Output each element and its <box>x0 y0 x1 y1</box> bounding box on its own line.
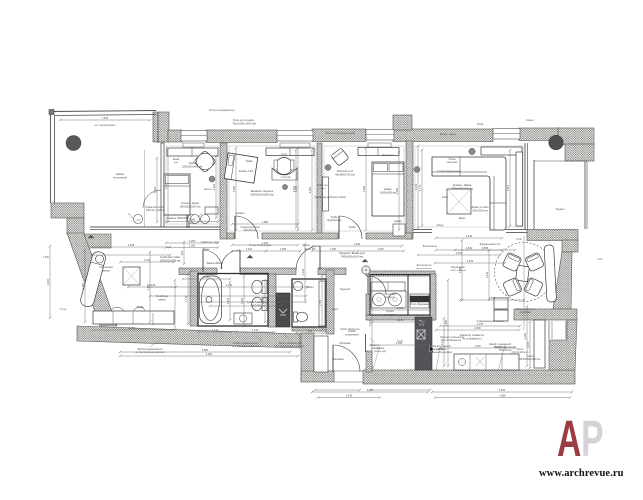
svg-text:2400 мм, 3х600 мм: 2400 мм, 3х600 мм <box>146 210 167 212</box>
svg-text:1,420: 1,420 <box>246 247 253 251</box>
svg-text:3,120: 3,120 <box>414 183 418 190</box>
svg-text:1,980: 1,980 <box>146 283 150 290</box>
svg-text:2,280: 2,280 <box>189 239 196 243</box>
svg-text:гарнитур: гарнитур <box>385 314 396 317</box>
svg-text:www.archrevue.ru: www.archrevue.ru <box>539 468 624 479</box>
svg-text:1,545: 1,545 <box>377 247 384 251</box>
svg-text:2,465: 2,465 <box>128 243 135 247</box>
svg-text:розеты под: розеты под <box>374 351 387 353</box>
svg-text:2,810: 2,810 <box>456 251 463 255</box>
svg-text:Выбор компонентов: Выбор компонентов <box>279 342 302 345</box>
svg-text:900х600х750 мм: 900х600х750 мм <box>335 174 354 177</box>
svg-text:Журнальный стол: Журнальный стол <box>480 243 501 246</box>
svg-text:Шкаф: Шкаф <box>173 158 179 161</box>
svg-text:1,720: 1,720 <box>144 258 151 262</box>
svg-text:2,760: 2,760 <box>129 326 136 330</box>
svg-text:Кровать: Кровать <box>235 212 245 215</box>
svg-text:2,880: 2,880 <box>444 319 448 326</box>
svg-text:Кровать 1400: Кровать 1400 <box>239 171 254 173</box>
svg-text:1,310: 1,310 <box>252 328 259 332</box>
svg-text:Прихожая: Прихожая <box>339 342 351 345</box>
svg-text:2,895: 2,895 <box>482 246 489 250</box>
svg-text:не отображается: не отображается <box>463 337 482 340</box>
svg-text:1,660: 1,660 <box>240 297 244 304</box>
svg-text:4,640: 4,640 <box>499 388 506 392</box>
svg-text:2,990: 2,990 <box>354 242 361 246</box>
svg-text:1,160: 1,160 <box>203 275 210 279</box>
svg-text:1,660: 1,660 <box>489 296 496 300</box>
svg-text:Тумба. Шкаф-купе: Тумба. Шкаф-купе <box>340 328 360 331</box>
svg-text:Кресло: Кресло <box>204 189 212 191</box>
svg-text:2,990: 2,990 <box>292 185 296 192</box>
svg-text:(не окончательно) определ.: (не окончательно) определ. <box>275 346 305 348</box>
svg-text:Задела: Задела <box>376 347 385 350</box>
svg-text:2,810: 2,810 <box>466 246 473 250</box>
svg-text:двери: двери <box>332 309 339 311</box>
svg-text:1,435: 1,435 <box>346 394 353 398</box>
svg-text:Двери 800: Двери 800 <box>304 249 316 251</box>
svg-text:Стена: Стена <box>60 308 67 311</box>
svg-text:2,930: 2,930 <box>395 187 399 194</box>
svg-text:Лоджия: Лоджия <box>556 208 566 211</box>
svg-text:Кровать 1600х2000: Кровать 1600х2000 <box>167 217 190 220</box>
svg-text:-0,02: -0,02 <box>136 220 142 222</box>
svg-text:2,120: 2,120 <box>397 306 404 310</box>
svg-text:Полка: Полка <box>449 158 456 161</box>
svg-text:Дверь: Дверь <box>202 248 210 251</box>
svg-text:Ванна: Ванна <box>102 269 110 272</box>
svg-text:Тумба: Тумба <box>348 226 356 229</box>
svg-text:Полка: Полка <box>477 124 484 126</box>
svg-text:Кровать. Шкаф: Кровать. Шкаф <box>453 183 472 187</box>
svg-text:750х550 мм: 750х550 мм <box>499 350 512 352</box>
svg-text:панель: панель <box>158 298 167 301</box>
svg-text:Ковер: Ковер <box>437 224 444 227</box>
svg-text:3,180: 3,180 <box>153 186 157 193</box>
svg-text:1,420: 1,420 <box>526 341 530 348</box>
svg-text:980: 980 <box>308 329 313 333</box>
svg-text:3,080: 3,080 <box>232 185 236 192</box>
svg-text:Стена. Перегородки: Стена. Перегородки <box>249 244 272 247</box>
svg-text:Шкаф, комод: Шкаф, комод <box>440 132 457 136</box>
svg-text:2,080: 2,080 <box>189 244 196 248</box>
svg-text:Кухонный: Кухонный <box>385 293 396 296</box>
svg-text:не отображается: не отображается <box>443 340 462 342</box>
svg-text:2,980: 2,980 <box>308 186 312 193</box>
svg-text:1,980: 1,980 <box>458 266 462 273</box>
svg-text:Обеденный стол: Обеденный стол <box>516 308 535 311</box>
svg-text:2700х1800х620 мм: 2700х1800х620 мм <box>451 188 473 191</box>
svg-text:2,080: 2,080 <box>523 332 527 339</box>
svg-text:2,830: 2,830 <box>474 326 481 330</box>
svg-text:Стол: Стол <box>516 238 522 241</box>
svg-text:1,080: 1,080 <box>280 247 287 251</box>
svg-text:Кухня: Кухня <box>387 309 395 313</box>
svg-text:1600х2000х620 мм: 1600х2000х620 мм <box>180 205 201 208</box>
svg-text:Шкаф: Шкаф <box>437 348 444 351</box>
svg-text:Тумба под рабочим столом: Тумба под рабочим столом <box>314 196 346 199</box>
svg-text:(не оказывать) покрытие: (не оказывать) покрытие <box>232 345 260 348</box>
svg-text:3,130: 3,130 <box>164 182 168 189</box>
svg-text:2,880: 2,880 <box>81 282 85 289</box>
svg-text:Тумба: Тумба <box>331 216 338 219</box>
svg-text:2,620: 2,620 <box>46 278 50 285</box>
svg-text:2,900: 2,900 <box>212 183 216 190</box>
svg-text:Подвесной шкаф: Подвесной шкаф <box>240 226 259 229</box>
svg-text:d-1200 мм: d-1200 мм <box>520 312 531 314</box>
svg-text:6,020: 6,020 <box>206 352 213 356</box>
svg-text:Тумба под: Тумба под <box>317 185 329 187</box>
svg-text:Стол раб.: Стол раб. <box>281 177 292 179</box>
svg-text:настенная: настенная <box>446 162 458 164</box>
svg-text:1,210: 1,210 <box>212 328 219 332</box>
svg-text:Выключатель: Выключатель <box>423 246 438 248</box>
svg-text:Ванна Villeroy: Ванна Villeroy <box>207 262 224 265</box>
svg-text:Выбор керамогранита: Выбор керамогранита <box>138 348 163 351</box>
svg-text:Плита: Плита <box>527 355 535 358</box>
svg-text:1,455: 1,455 <box>467 259 474 263</box>
svg-text:2400х600х2600 мм: 2400х600х2600 мм <box>341 256 363 259</box>
svg-text:Шкафчик. Зеркало: Шкафчик. Зеркало <box>251 189 274 193</box>
svg-text:Стол обеденный: Стол обеденный <box>410 303 430 306</box>
svg-text:Рабочий стол: Рабочий стол <box>337 169 354 173</box>
svg-text:1,430: 1,430 <box>485 271 489 278</box>
svg-text:5,880: 5,880 <box>202 348 209 352</box>
svg-text:Карниз: Карниз <box>302 244 310 247</box>
svg-text:1,840: 1,840 <box>397 318 404 322</box>
svg-text:1,380: 1,380 <box>330 247 337 251</box>
svg-text:1,310: 1,310 <box>226 297 230 304</box>
svg-text:2,080: 2,080 <box>189 218 196 222</box>
svg-text:810: 810 <box>180 250 184 255</box>
svg-text:0,00: 0,00 <box>598 258 603 261</box>
svg-text:Карниз: Карниз <box>526 120 534 122</box>
svg-text:1,812: 1,812 <box>466 234 473 238</box>
svg-text:2,060: 2,060 <box>396 341 403 345</box>
svg-text:прикроватная: прикроватная <box>327 220 342 222</box>
svg-text:Выключатели: Выключатели <box>417 265 432 267</box>
svg-text:Рабочая столешница: Рабочая столешница <box>440 336 464 339</box>
svg-text:P: P <box>581 411 603 468</box>
svg-text:760х1500х2600 мм: 760х1500х2600 мм <box>232 122 256 126</box>
svg-text:Ковер: Ковер <box>442 197 449 199</box>
svg-text:Блок для кондиционеров: Блок для кондиционеров <box>325 131 356 135</box>
svg-text:Гардероб: Гардероб <box>340 288 351 291</box>
svg-text:Шкаф с раковиной: Шкаф с раковиной <box>495 346 516 349</box>
svg-text:Гардероб. Шкаф-купе: Гардероб. Шкаф-купе <box>339 251 366 255</box>
svg-text:1 850: 1 850 <box>43 256 50 259</box>
svg-text:Диван: Диван <box>459 218 466 220</box>
svg-text:гарнитур: гарнитур <box>385 297 395 299</box>
svg-text:Стол: Стол <box>281 153 287 156</box>
svg-text:встроенный(не указан): встроенный(не указан) <box>428 351 453 354</box>
svg-text:не окончательное решение: не окончательное решение <box>135 352 165 354</box>
svg-text:2800х2200 мм: 2800х2200 мм <box>472 209 488 212</box>
svg-text:85х85х850/1000 мм: 85х85х850/1000 мм <box>520 359 541 361</box>
svg-text:3,170: 3,170 <box>418 184 422 191</box>
svg-text:обустройств ап: обустройств ап <box>512 351 530 354</box>
svg-text:потолочный: потолочный <box>113 176 127 179</box>
svg-text:Стол: Стол <box>197 286 203 289</box>
svg-text:7,465: 7,465 <box>102 116 109 120</box>
svg-text:3,300: 3,300 <box>474 344 481 348</box>
svg-text:1,760: 1,760 <box>318 299 322 306</box>
svg-text:900х300 мм: 900х300 мм <box>244 230 257 232</box>
svg-text:1,980: 1,980 <box>499 394 506 398</box>
svg-text:купе: купе <box>174 162 179 164</box>
svg-text:2,870: 2,870 <box>506 184 510 191</box>
svg-text:2,230: 2,230 <box>477 322 484 326</box>
svg-text:Прихожая: Прихожая <box>332 358 344 361</box>
svg-text:столом: столом <box>318 188 326 190</box>
svg-text:1,880: 1,880 <box>262 220 269 224</box>
svg-text:Тумба: Тумба <box>245 160 253 163</box>
svg-text:Тумба: Тумба <box>136 306 144 309</box>
svg-text:переключатели: переключатели <box>416 268 432 270</box>
svg-text:Тумба low стайл: Тумба low стайл <box>201 241 220 244</box>
svg-text:Столик журнальный: Столик журнальный <box>437 170 461 173</box>
svg-text:Блок (за кондиционер): Блок (за кондиционер) <box>209 109 234 112</box>
svg-text:1600х2000 мм: 1600х2000 мм <box>380 191 396 194</box>
svg-text:1200х520х450 мм: 1200х520х450 мм <box>182 165 203 168</box>
svg-text:4,120: 4,120 <box>226 283 233 287</box>
svg-text:встроенный: встроенный <box>345 333 359 336</box>
svg-text:1,420: 1,420 <box>261 297 265 304</box>
svg-text:3,940: 3,940 <box>367 388 374 392</box>
svg-text:Шкаф купе: Шкаф купе <box>382 154 394 157</box>
svg-text:Блок для кондиц.: Блок для кондиц. <box>233 118 255 122</box>
svg-text:3600х1800х2600 мм: 3600х1800х2600 мм <box>250 194 274 197</box>
svg-text:A: A <box>557 411 581 468</box>
svg-text:2,980: 2,980 <box>362 185 366 192</box>
svg-text:Шкаф: Шкаф <box>395 220 402 223</box>
svg-text:Тумба low стайл: Тумба low стайл <box>160 255 181 259</box>
svg-text:пол: керамогранит: пол: керамогранит <box>94 124 116 127</box>
svg-text:1,540: 1,540 <box>301 268 305 275</box>
svg-text:1,720: 1,720 <box>184 295 188 302</box>
